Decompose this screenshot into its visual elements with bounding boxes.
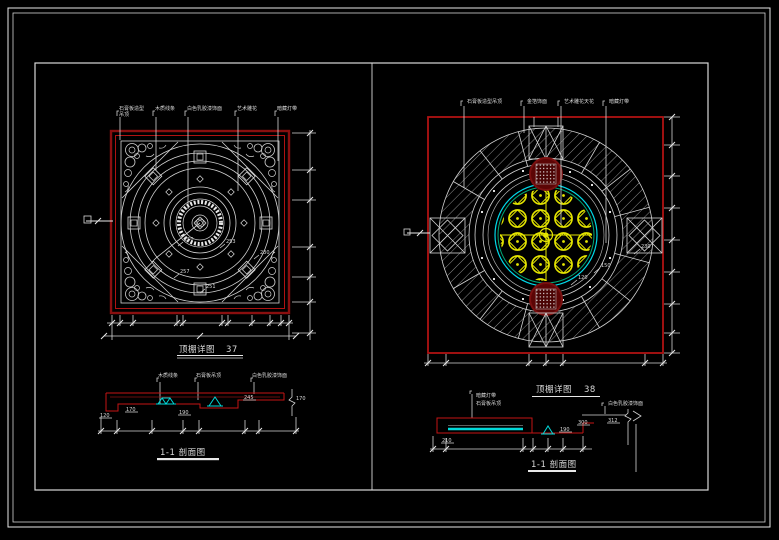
callout-label: 暗藏灯带	[277, 105, 297, 112]
left-plan-title: 顶棚详图 37	[177, 344, 243, 358]
callout-label: 暗藏灯带	[609, 98, 629, 105]
right-plan-bottom-medallion	[530, 283, 562, 315]
right-plan-title-text: 顶棚详图	[536, 384, 572, 395]
dim-text: 230	[641, 244, 651, 250]
left-plan-number: 37	[226, 345, 238, 355]
cad-sheet: 石膏板造型 吊顶 木质线条 白色乳胶漆饰面 艺术雕花 暗藏灯带 250 253 …	[0, 0, 779, 540]
callout-label: 金箔饰面	[527, 98, 547, 105]
callout-label: 艺术雕花天花	[564, 98, 594, 105]
callout-label: 石膏板吊顶	[476, 400, 501, 407]
callout-label: 艺术雕花	[237, 105, 257, 112]
callout-label: 石膏板造型吊顶	[467, 98, 502, 105]
left-section-title-text: 1-1 剖面图	[160, 447, 206, 458]
callout-label: 暗藏灯带	[476, 392, 496, 399]
callout-label: 吊顶	[119, 112, 129, 118]
dim-text: 253	[226, 239, 236, 245]
cad-canvas: 石膏板造型 吊顶 木质线条 白色乳胶漆饰面 艺术雕花 暗藏灯带 250 253 …	[0, 0, 779, 540]
dim-text: 250	[184, 237, 194, 243]
right-plan-number: 38	[584, 385, 596, 395]
callout-label: 石膏板吊顶	[196, 372, 221, 379]
dim-text: 251	[206, 284, 216, 290]
dim-text: 257	[180, 269, 190, 275]
right-section-title-text: 1-1 剖面图	[531, 459, 577, 470]
left-plan-title-text: 顶棚详图	[179, 344, 215, 355]
dim-text: 230	[260, 250, 270, 256]
callout-label: 木质线条	[158, 372, 178, 379]
right-plan-title: 顶棚详图 38	[532, 384, 600, 397]
callout-label: 白色乳胶漆饰面	[608, 400, 643, 407]
callout-label: 白色乳胶漆饰面	[187, 105, 222, 112]
right-plan-yellow-lattice	[500, 189, 592, 281]
callout-label: 白色乳胶漆饰面	[252, 372, 287, 379]
dim-text: 170	[296, 396, 306, 402]
callout-label: 石膏板造型	[119, 105, 144, 112]
right-plan-top-medallion	[530, 158, 562, 190]
callout-label: 木质线条	[155, 105, 175, 112]
dim-text: 150	[601, 263, 611, 269]
right-section-title: 1-1 剖面图	[528, 459, 577, 472]
dim-text: 120	[578, 275, 588, 281]
